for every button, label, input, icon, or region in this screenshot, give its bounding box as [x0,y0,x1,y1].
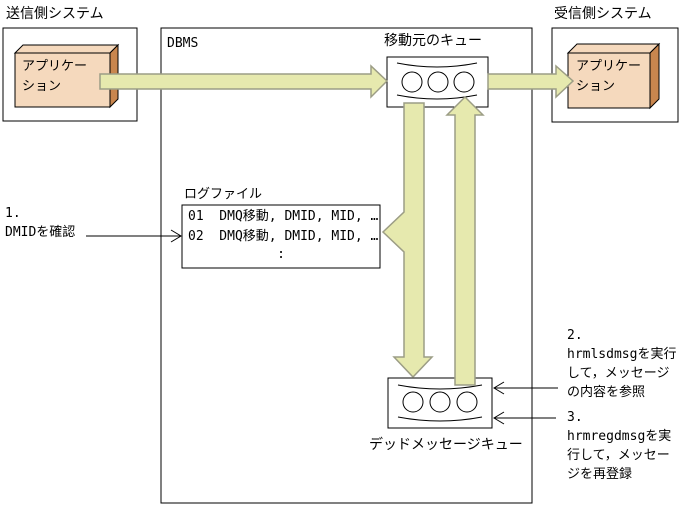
sender-system-label: 送信側システム [6,5,104,24]
logfile-row-1: 01 DMQ移動, DMID, MID, … [188,207,378,226]
sender-app-top-face [15,45,118,53]
logfile-label: ログファイル [184,185,262,204]
note2-text: 2. hrmlsdmsgを実行 して，メッセージ の内容を参照 [567,326,676,402]
receiver-app-top-face [568,44,659,53]
logfile-row-2: 02 DMQ移動, DMID, MID, … [188,227,378,246]
receiver-app-side-face [650,44,659,108]
source-queue-label: 移動元のキュー [384,32,482,51]
dead-message-queue-icon [388,378,492,428]
diagram-canvas: 送信側システム 受信側システム DBMS 移動元のキュー アプリケー ション ア… [0,0,687,509]
source-queue-icon [387,57,488,107]
dead-queue-label: デッドメッセージキュー [369,436,523,455]
note3-text: 3. hrmregdmsgを実 行して，メッセー ジを再登録 [567,408,671,484]
note1-text: 1. DMIDを確認 [5,204,75,242]
logfile-row-ellipsis: : [182,245,380,264]
sender-app-label: アプリケー ション [22,57,87,97]
receiver-system-label: 受信側システム [554,5,652,24]
dbms-label: DBMS [167,34,198,53]
receiver-app-label: アプリケー ション [576,57,641,97]
